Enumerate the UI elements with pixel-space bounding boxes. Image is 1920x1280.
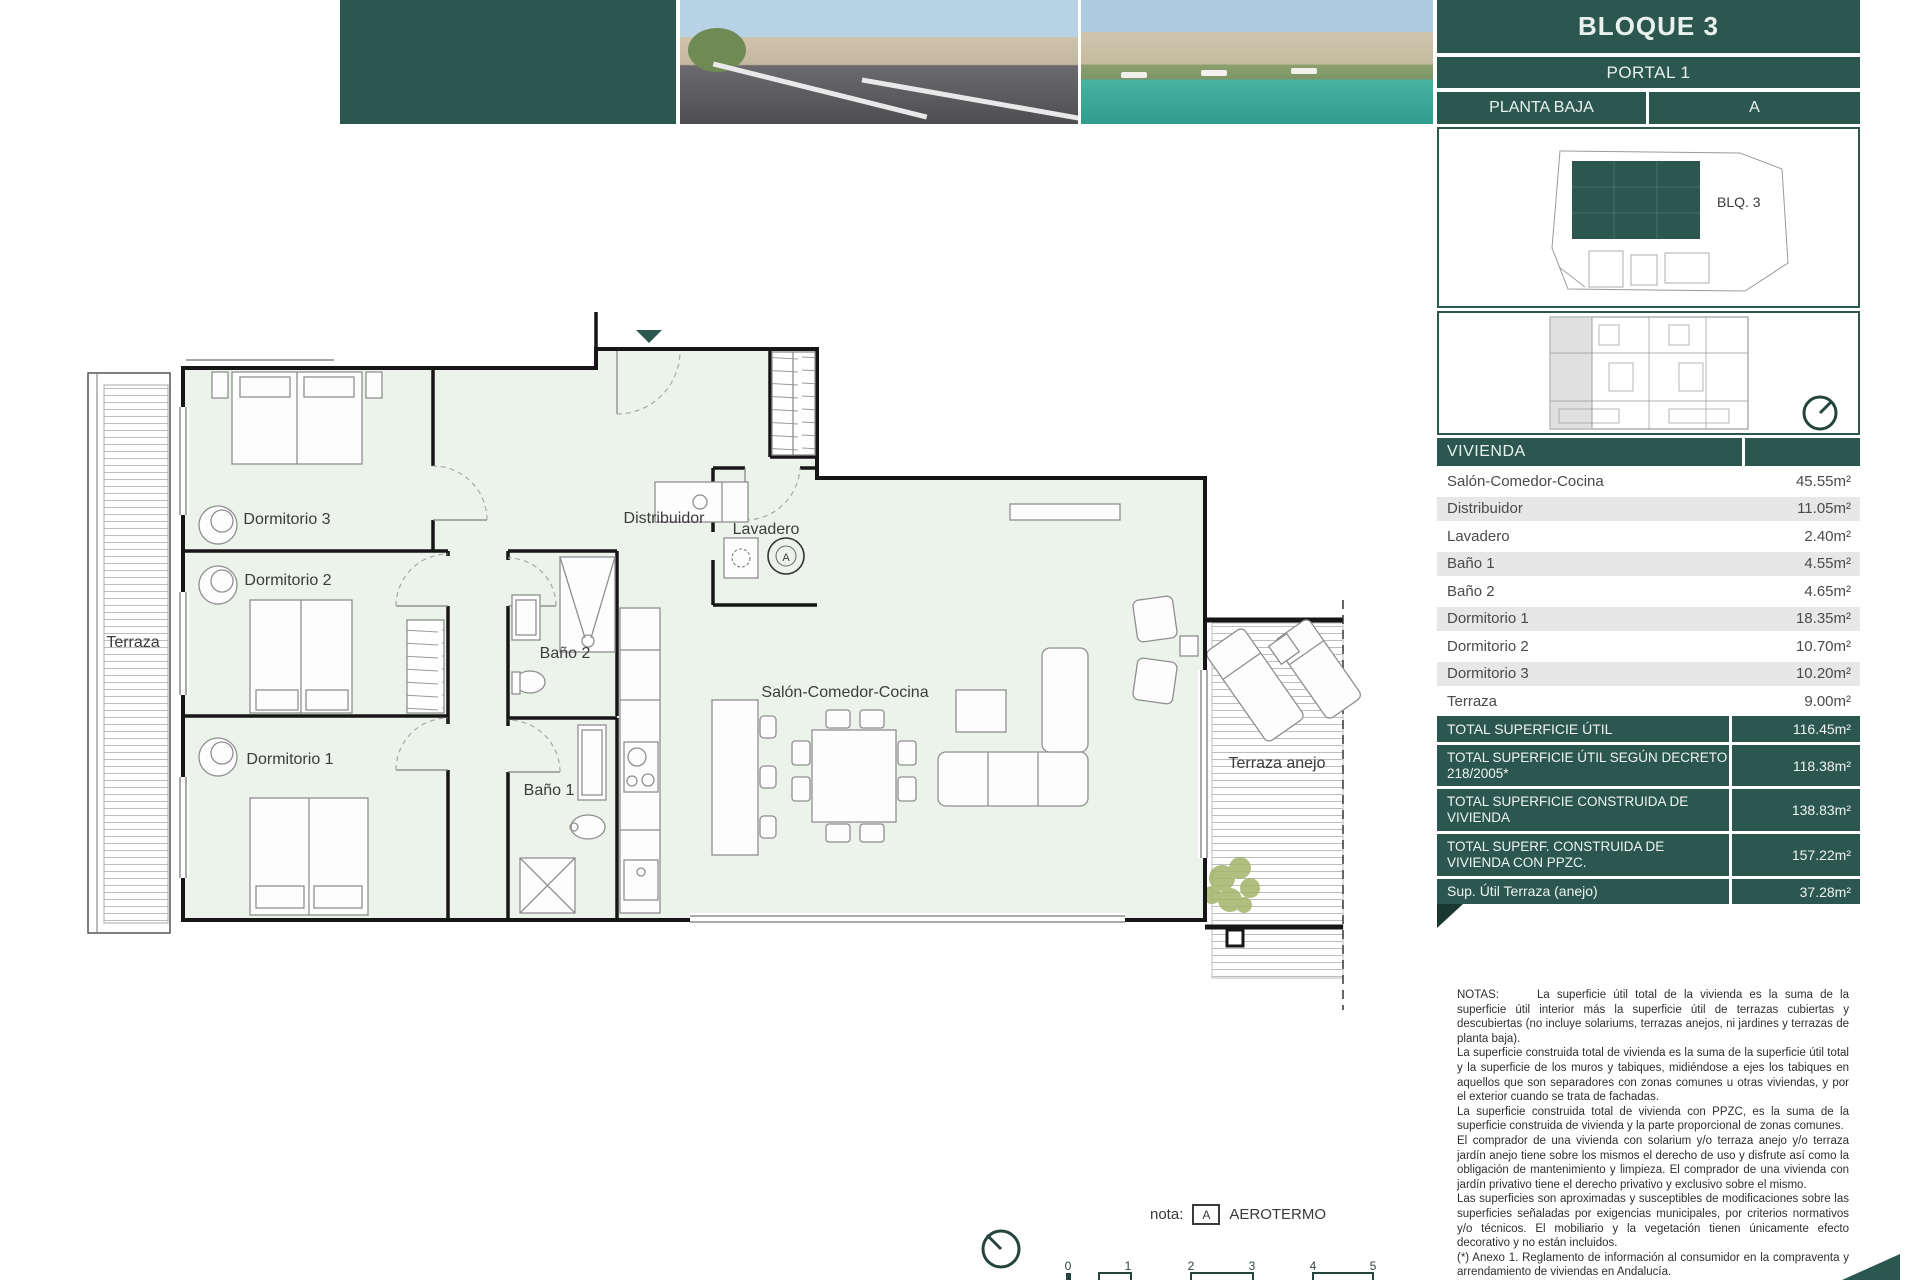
- north-compass-icon: [983, 1231, 1019, 1267]
- scale-tick: 2: [1181, 1259, 1201, 1273]
- scale-bar: [1066, 1273, 1373, 1280]
- table-row: Baño 24.65m²: [1437, 579, 1860, 604]
- label-dormitorio1: Dormitorio 1: [246, 751, 333, 768]
- planta-label: PLANTA BAJA: [1437, 92, 1646, 124]
- label-terraza-anejo: Terraza anejo: [1229, 755, 1326, 772]
- total-row: TOTAL SUPERF. CONSTRUIDA DE VIVIENDA CON…: [1437, 834, 1860, 876]
- notes-paragraph: Las superficies son aproximadas y suscep…: [1457, 1192, 1849, 1250]
- table-row: Baño 14.55m²: [1437, 552, 1860, 577]
- notes-paragraph: La superficie construida total de vivien…: [1457, 1105, 1849, 1134]
- aerotermo-icon: A: [768, 538, 804, 574]
- nota-label: nota:: [1150, 1206, 1183, 1223]
- scale-tick: 5: [1363, 1259, 1383, 1273]
- label-lavadero: Lavadero: [733, 521, 800, 538]
- areas-table: Salón-Comedor-Cocina45.55m² Distribuidor…: [1437, 469, 1860, 717]
- planta-row: PLANTA BAJA A: [1437, 92, 1860, 124]
- label-bano1: Baño 1: [524, 782, 575, 799]
- key-plan: [1439, 313, 1858, 433]
- site-plan-box: BLQ. 3: [1437, 127, 1860, 308]
- label-dormitorio2: Dormitorio 2: [244, 572, 331, 589]
- scale-tick: 1: [1118, 1259, 1138, 1273]
- table-row: Distribuidor11.05m²: [1437, 497, 1860, 522]
- notes-paragraph: (*) Anexo 1. Reglamento de información a…: [1457, 1251, 1849, 1280]
- total-row: TOTAL SUPERFICIE CONSTRUIDA DE VIVIENDA1…: [1437, 789, 1860, 831]
- table-row: Terraza9.00m²: [1437, 689, 1860, 714]
- aerotermo-legend-icon: A: [1192, 1204, 1220, 1225]
- nota-aerotermo: nota: A AEROTERMO: [1150, 1204, 1326, 1225]
- scale-tick: 3: [1242, 1259, 1262, 1273]
- blq-label: BLQ. 3: [1717, 194, 1761, 210]
- orientation-compass-icon: [1804, 397, 1836, 429]
- notes-block: NOTAS:La superficie útil total de la viv…: [1457, 988, 1849, 1280]
- label-salon: Salón-Comedor-Cocina: [761, 684, 928, 701]
- table-row: Dormitorio 118.35m²: [1437, 607, 1860, 632]
- terrace-left: [88, 373, 170, 933]
- key-plan-box: [1437, 311, 1860, 435]
- notes-title: NOTAS:: [1457, 989, 1499, 1001]
- fold-decor: [1437, 904, 1463, 928]
- label-terraza: Terraza: [106, 634, 159, 651]
- unit-letter: A: [1649, 92, 1860, 124]
- nota-text: AEROTERMO: [1229, 1206, 1326, 1223]
- bloque-title: BLOQUE 3: [1437, 0, 1860, 53]
- notes-paragraph: El comprador de una vivienda con solariu…: [1457, 1134, 1849, 1192]
- terrace-anejo: [1203, 600, 1363, 1010]
- scale-tick: 4: [1303, 1259, 1323, 1273]
- scale-tick: 0: [1058, 1259, 1078, 1273]
- total-row: Sup. Útil Terraza (anejo)37.28m²: [1437, 879, 1860, 904]
- notes-paragraph: NOTAS:La superficie útil total de la viv…: [1457, 988, 1849, 1046]
- info-panel: BLOQUE 3 PORTAL 1 PLANTA BAJA A BLQ. 3: [1437, 0, 1860, 1280]
- entry-arrow-icon: [636, 330, 662, 343]
- table-row: Lavadero2.40m²: [1437, 524, 1860, 549]
- table-row: Salón-Comedor-Cocina45.55m²: [1437, 469, 1860, 494]
- table-row: Dormitorio 210.70m²: [1437, 634, 1860, 659]
- table-row: Dormitorio 310.20m²: [1437, 662, 1860, 687]
- label-dormitorio3: Dormitorio 3: [243, 511, 330, 528]
- portal-title: PORTAL 1: [1437, 57, 1860, 88]
- total-row: TOTAL SUPERFICIE ÚTIL116.45m²: [1437, 716, 1860, 742]
- table-header-row: VIVIENDA: [1437, 438, 1860, 466]
- label-bano2: Baño 2: [540, 645, 591, 662]
- table-header-label: VIVIENDA: [1437, 438, 1745, 466]
- svg-text:A: A: [782, 552, 790, 564]
- notes-paragraph: La superficie construida total de vivien…: [1457, 1046, 1849, 1104]
- site-plan: BLQ. 3: [1439, 129, 1858, 306]
- label-distribuidor: Distribuidor: [624, 510, 706, 527]
- total-row: TOTAL SUPERFICIE ÚTIL SEGÚN DECRETO 218/…: [1437, 745, 1860, 786]
